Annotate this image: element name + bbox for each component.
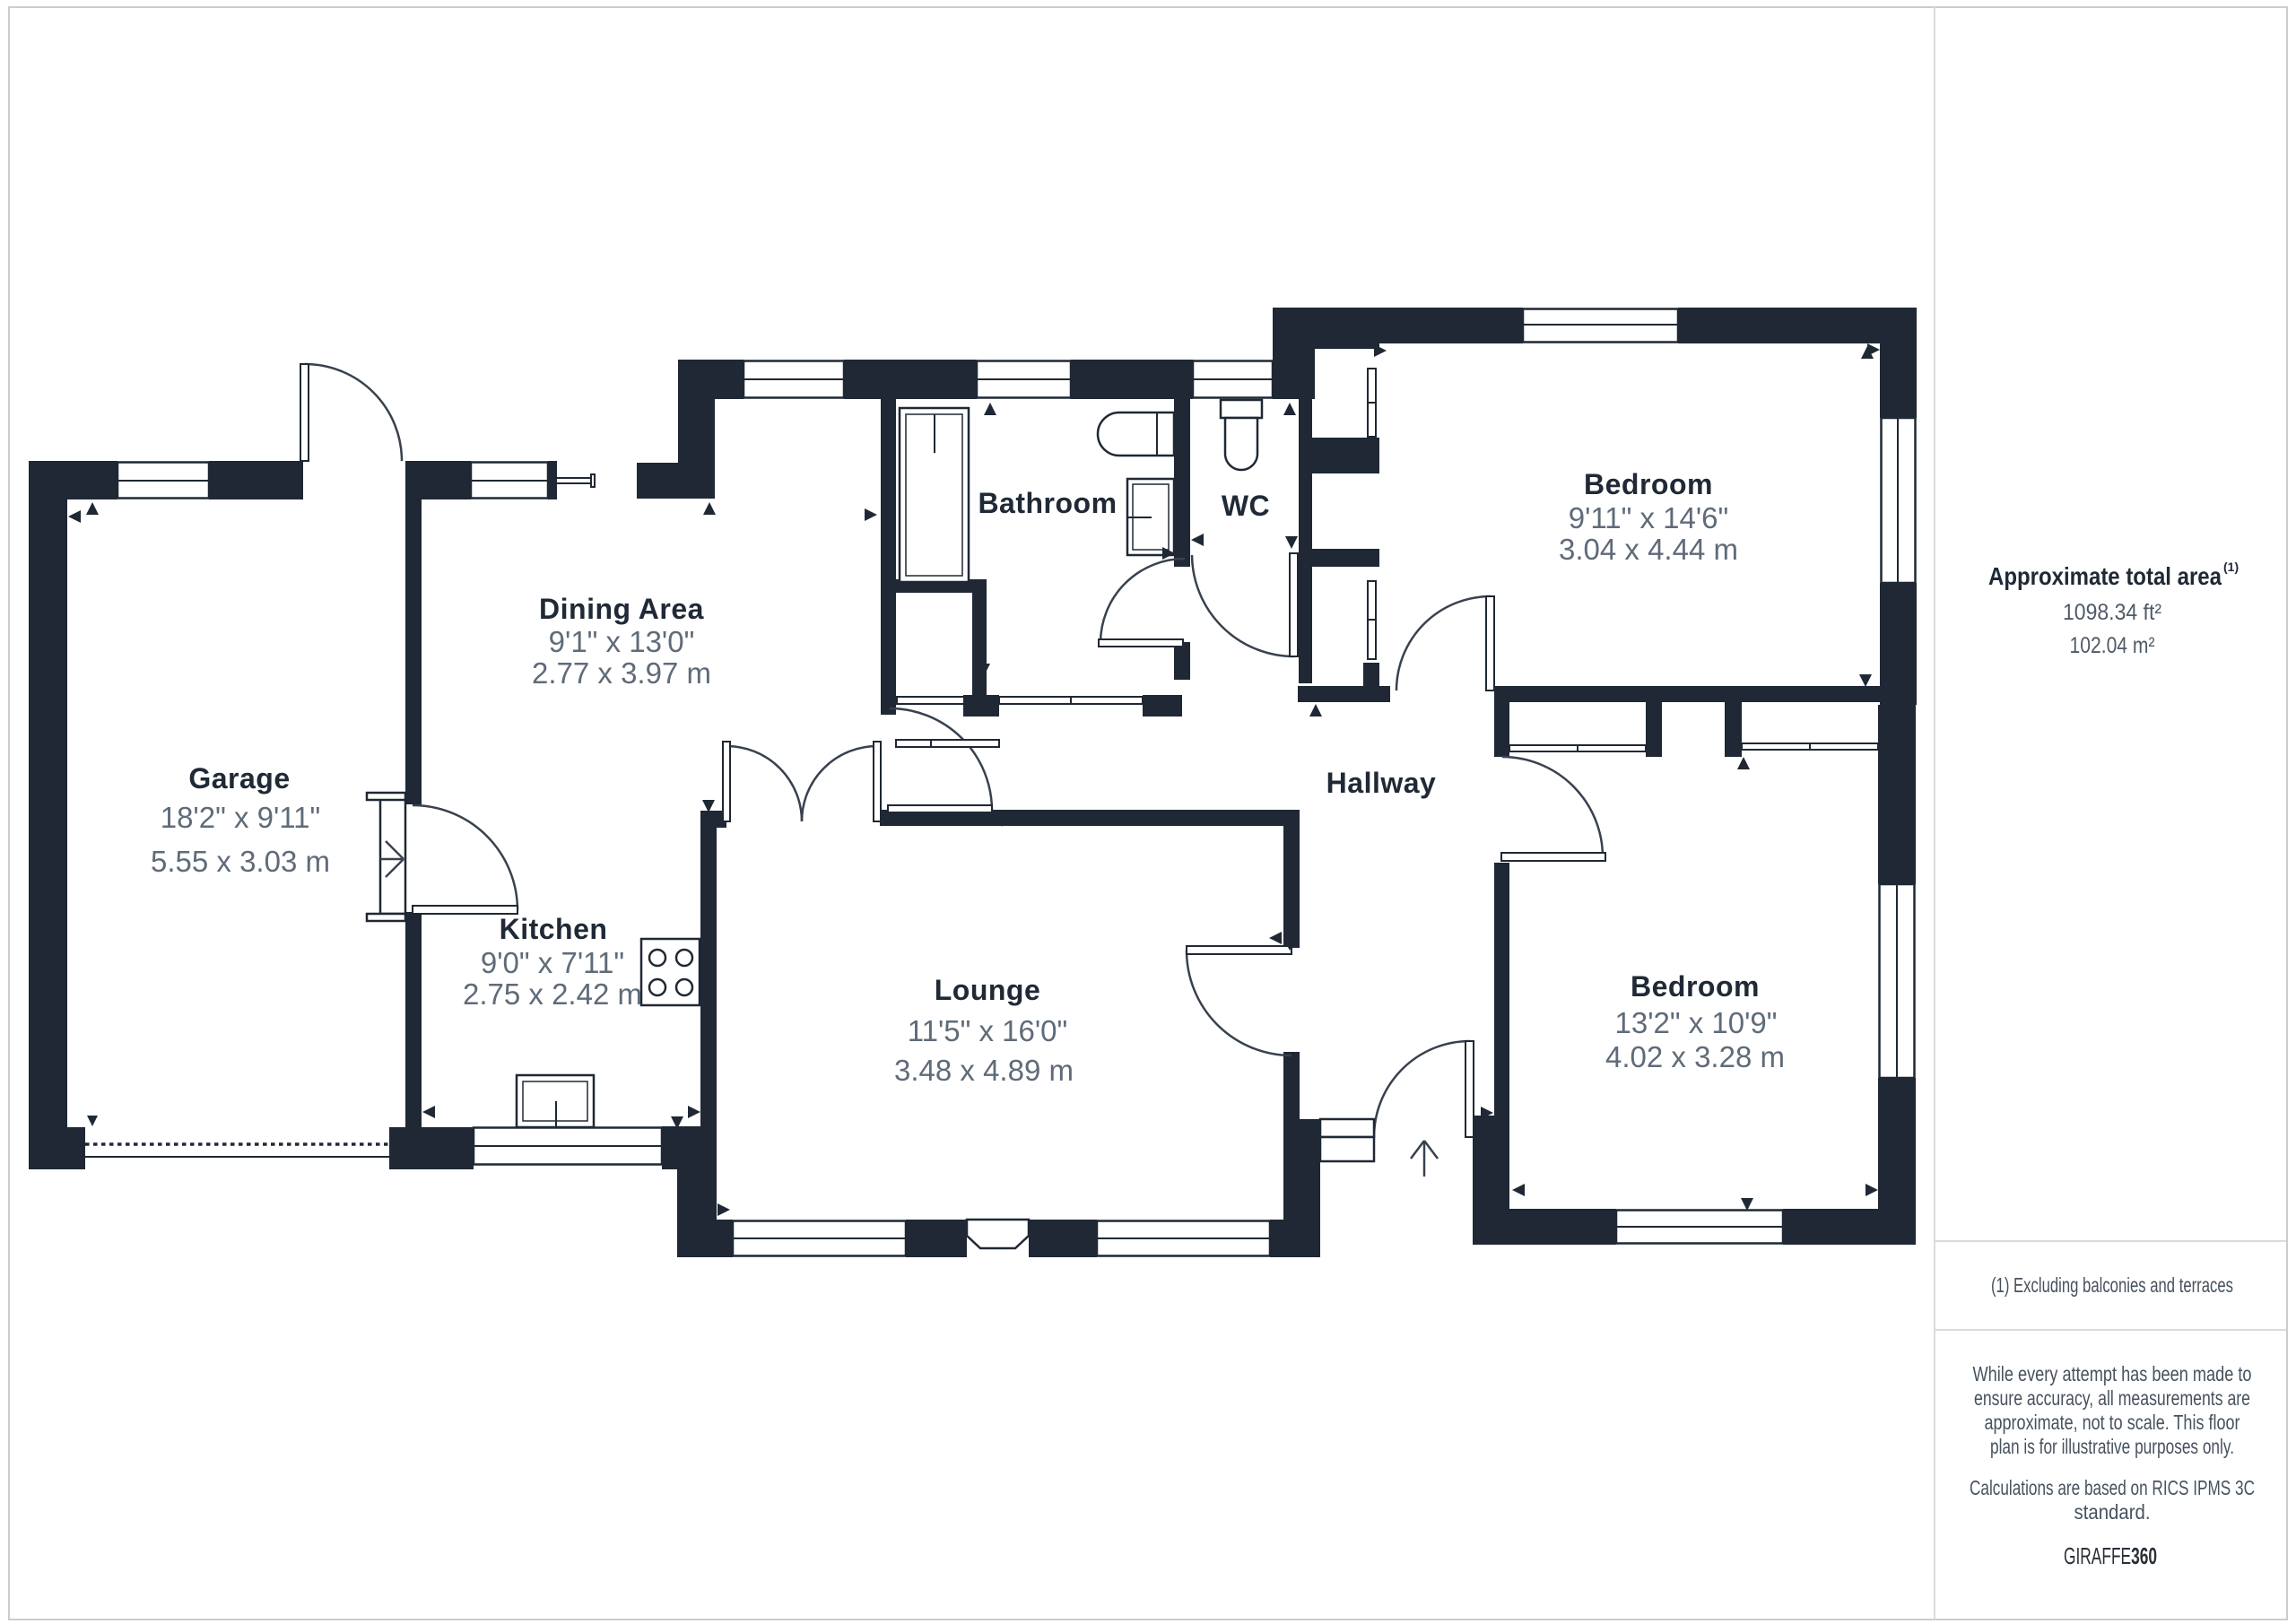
svg-text:(1): (1) bbox=[2223, 560, 2239, 574]
svg-text:Bathroom: Bathroom bbox=[978, 487, 1117, 519]
svg-text:WC: WC bbox=[1222, 490, 1270, 522]
svg-text:(1) Excluding balconies and te: (1) Excluding balconies and terraces bbox=[1991, 1273, 2233, 1297]
svg-text:1098.34 ft²: 1098.34 ft² bbox=[2063, 600, 2161, 625]
svg-text:5.55 x 3.03 m: 5.55 x 3.03 m bbox=[151, 845, 330, 878]
svg-text:ensure accuracy, all measureme: ensure accuracy, all measurements are bbox=[1974, 1386, 2250, 1410]
svg-text:Approximate total area: Approximate total area bbox=[1988, 562, 2222, 590]
svg-text:3.48 x 4.89 m: 3.48 x 4.89 m bbox=[894, 1054, 1074, 1087]
svg-text:2.75 x 2.42 m: 2.75 x 2.42 m bbox=[463, 977, 642, 1011]
svg-text:4.02 x 3.28 m: 4.02 x 3.28 m bbox=[1605, 1040, 1785, 1073]
svg-text:3.04 x 4.44 m: 3.04 x 4.44 m bbox=[1559, 533, 1738, 566]
svg-text:102.04 m²: 102.04 m² bbox=[2070, 633, 2155, 658]
svg-text:Dining Area: Dining Area bbox=[539, 593, 704, 625]
svg-text:2.77 x 3.97 m: 2.77 x 3.97 m bbox=[532, 656, 711, 690]
svg-text:Bedroom: Bedroom bbox=[1584, 468, 1713, 500]
svg-text:13'2" x 10'9": 13'2" x 10'9" bbox=[1615, 1006, 1778, 1039]
svg-text:Lounge: Lounge bbox=[935, 974, 1041, 1006]
svg-text:11'5" x 16'0": 11'5" x 16'0" bbox=[908, 1014, 1068, 1047]
svg-text:Hallway: Hallway bbox=[1326, 767, 1437, 799]
svg-text:9'1" x 13'0": 9'1" x 13'0" bbox=[549, 625, 695, 658]
svg-text:Calculations are based on RICS: Calculations are based on RICS IPMS 3C bbox=[1970, 1476, 2255, 1499]
svg-text:standard.: standard. bbox=[2074, 1500, 2151, 1524]
svg-text:9'0" x 7'11": 9'0" x 7'11" bbox=[481, 946, 624, 979]
svg-text:9'11" x 14'6": 9'11" x 14'6" bbox=[1569, 501, 1729, 534]
svg-text:Bedroom: Bedroom bbox=[1631, 970, 1760, 1003]
svg-text:approximate, not to scale. Thi: approximate, not to scale. This floor bbox=[1985, 1411, 2240, 1434]
svg-text:Kitchen: Kitchen bbox=[500, 913, 608, 945]
svg-text:GIRAFFE360: GIRAFFE360 bbox=[2064, 1542, 2157, 1569]
svg-text:While every attempt has been m: While every attempt has been made to bbox=[1973, 1362, 2252, 1385]
svg-text:Garage: Garage bbox=[188, 762, 290, 795]
svg-text:18'2" x 9'11": 18'2" x 9'11" bbox=[161, 801, 321, 834]
svg-text:plan is for illustrative purpo: plan is for illustrative purposes only. bbox=[1990, 1435, 2234, 1458]
